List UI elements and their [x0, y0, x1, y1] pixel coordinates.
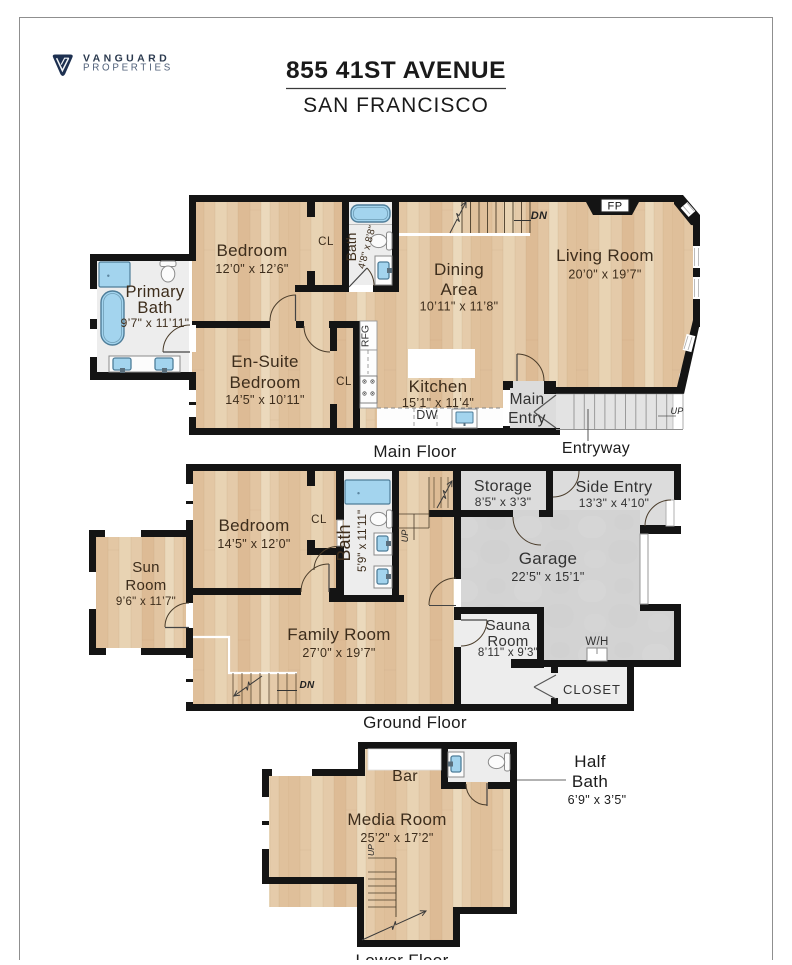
- svg-text:Bedroom: Bedroom: [218, 516, 289, 535]
- svg-text:22’5" x 15’1": 22’5" x 15’1": [511, 570, 584, 584]
- svg-text:Bedroom: Bedroom: [216, 241, 287, 260]
- svg-text:Side Entry: Side Entry: [576, 479, 653, 496]
- svg-text:CL: CL: [336, 376, 352, 388]
- svg-text:6’9" x 3’5": 6’9" x 3’5": [568, 793, 627, 807]
- svg-text:12’0" x 12’6": 12’0" x 12’6": [215, 262, 288, 276]
- svg-text:Area: Area: [440, 280, 477, 299]
- svg-text:Storage: Storage: [474, 478, 532, 495]
- svg-text:SAN FRANCISCO: SAN FRANCISCO: [303, 94, 489, 117]
- svg-text:15’1" x 11’4": 15’1" x 11’4": [402, 396, 474, 410]
- svg-text:14’5" x 10’11": 14’5" x 10’11": [225, 393, 305, 407]
- svg-text:Kitchen: Kitchen: [409, 377, 468, 396]
- svg-text:20’0" x 19’7": 20’0" x 19’7": [568, 268, 641, 282]
- svg-text:Ground Floor: Ground Floor: [363, 713, 467, 732]
- svg-text:Bedroom: Bedroom: [229, 373, 300, 392]
- svg-text:Main: Main: [510, 391, 545, 408]
- svg-text:27’0" x 19’7": 27’0" x 19’7": [302, 646, 375, 660]
- svg-text:DN: DN: [299, 680, 315, 691]
- svg-text:Bath: Bath: [334, 524, 354, 561]
- svg-text:25’2" x 17’2": 25’2" x 17’2": [360, 831, 433, 845]
- svg-text:Main Floor: Main Floor: [373, 442, 456, 461]
- svg-text:Lower Floor: Lower Floor: [355, 951, 448, 960]
- svg-text:Family Room: Family Room: [287, 625, 390, 644]
- svg-text:UP: UP: [400, 530, 410, 543]
- svg-text:8’11" x 9’3": 8’11" x 9’3": [478, 647, 538, 659]
- svg-text:RFG: RFG: [360, 325, 372, 347]
- svg-text:13’3" x 4’10": 13’3" x 4’10": [579, 496, 649, 510]
- svg-text:Media Room: Media Room: [347, 810, 446, 829]
- svg-text:Bath: Bath: [343, 233, 359, 262]
- svg-text:Bath: Bath: [137, 299, 172, 317]
- svg-text:Sun: Sun: [132, 559, 160, 576]
- svg-text:Half: Half: [574, 752, 605, 771]
- svg-text:CL: CL: [311, 514, 327, 526]
- svg-text:UP: UP: [366, 844, 376, 856]
- svg-text:PROPERTIES: PROPERTIES: [83, 63, 173, 74]
- svg-text:14’5" x 12’0": 14’5" x 12’0": [217, 537, 290, 551]
- svg-text:Entryway: Entryway: [562, 440, 630, 457]
- svg-text:En-Suite: En-Suite: [231, 352, 299, 371]
- svg-text:9’7" x 11’11": 9’7" x 11’11": [121, 316, 190, 330]
- svg-text:UP: UP: [670, 406, 683, 416]
- svg-text:9’6" x 11’7": 9’6" x 11’7": [116, 596, 176, 608]
- svg-text:Bar: Bar: [392, 768, 418, 785]
- svg-text:Bath: Bath: [572, 772, 608, 791]
- svg-text:Sauna: Sauna: [486, 617, 531, 634]
- svg-text:5’9" x 11’11": 5’9" x 11’11": [357, 510, 369, 572]
- svg-text:Living Room: Living Room: [556, 246, 654, 265]
- svg-text:CL: CL: [318, 236, 334, 248]
- svg-text:DN: DN: [531, 210, 548, 222]
- svg-text:10’11" x 11’8": 10’11" x 11’8": [420, 300, 499, 314]
- svg-text:Dining: Dining: [434, 260, 484, 279]
- svg-text:DW: DW: [416, 408, 437, 422]
- svg-text:Garage: Garage: [519, 549, 578, 568]
- svg-text:855 41ST AVENUE: 855 41ST AVENUE: [286, 57, 506, 84]
- svg-text:Entry: Entry: [508, 410, 546, 427]
- svg-text:Room: Room: [125, 577, 166, 594]
- svg-text:W/H: W/H: [585, 636, 608, 648]
- svg-text:FP: FP: [607, 201, 622, 213]
- svg-text:CLOSET: CLOSET: [563, 682, 621, 697]
- svg-text:8’5" x 3’3": 8’5" x 3’3": [475, 495, 532, 509]
